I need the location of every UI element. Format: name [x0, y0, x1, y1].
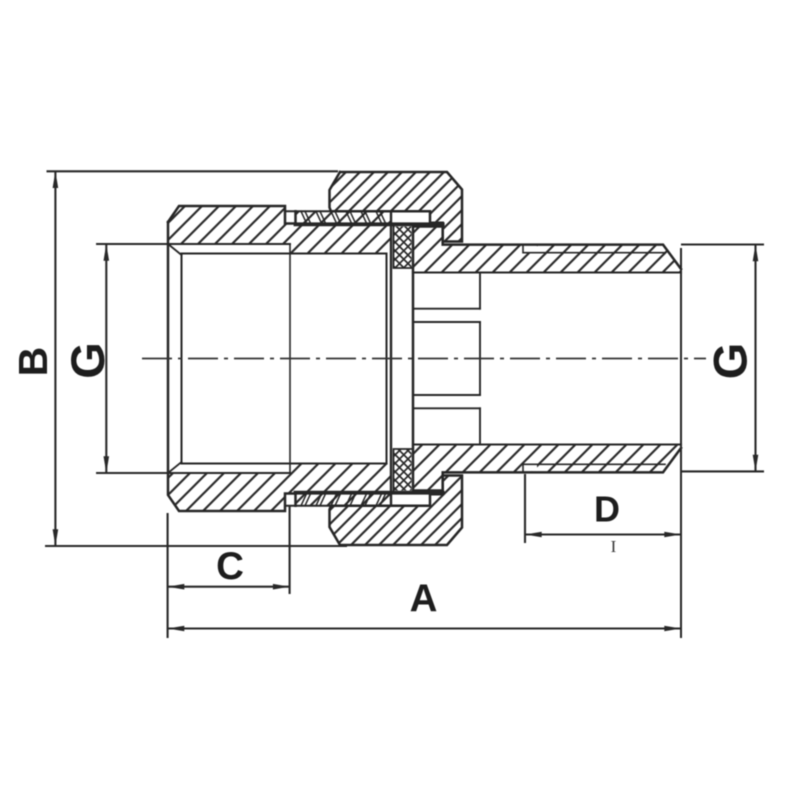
svg-text:G: G: [704, 343, 757, 380]
svg-text:C: C: [216, 545, 244, 588]
svg-text:I: I: [611, 537, 617, 556]
svg-text:D: D: [594, 489, 620, 530]
svg-text:G: G: [61, 342, 114, 379]
svg-text:B: B: [10, 347, 56, 377]
svg-text:A: A: [410, 578, 438, 621]
